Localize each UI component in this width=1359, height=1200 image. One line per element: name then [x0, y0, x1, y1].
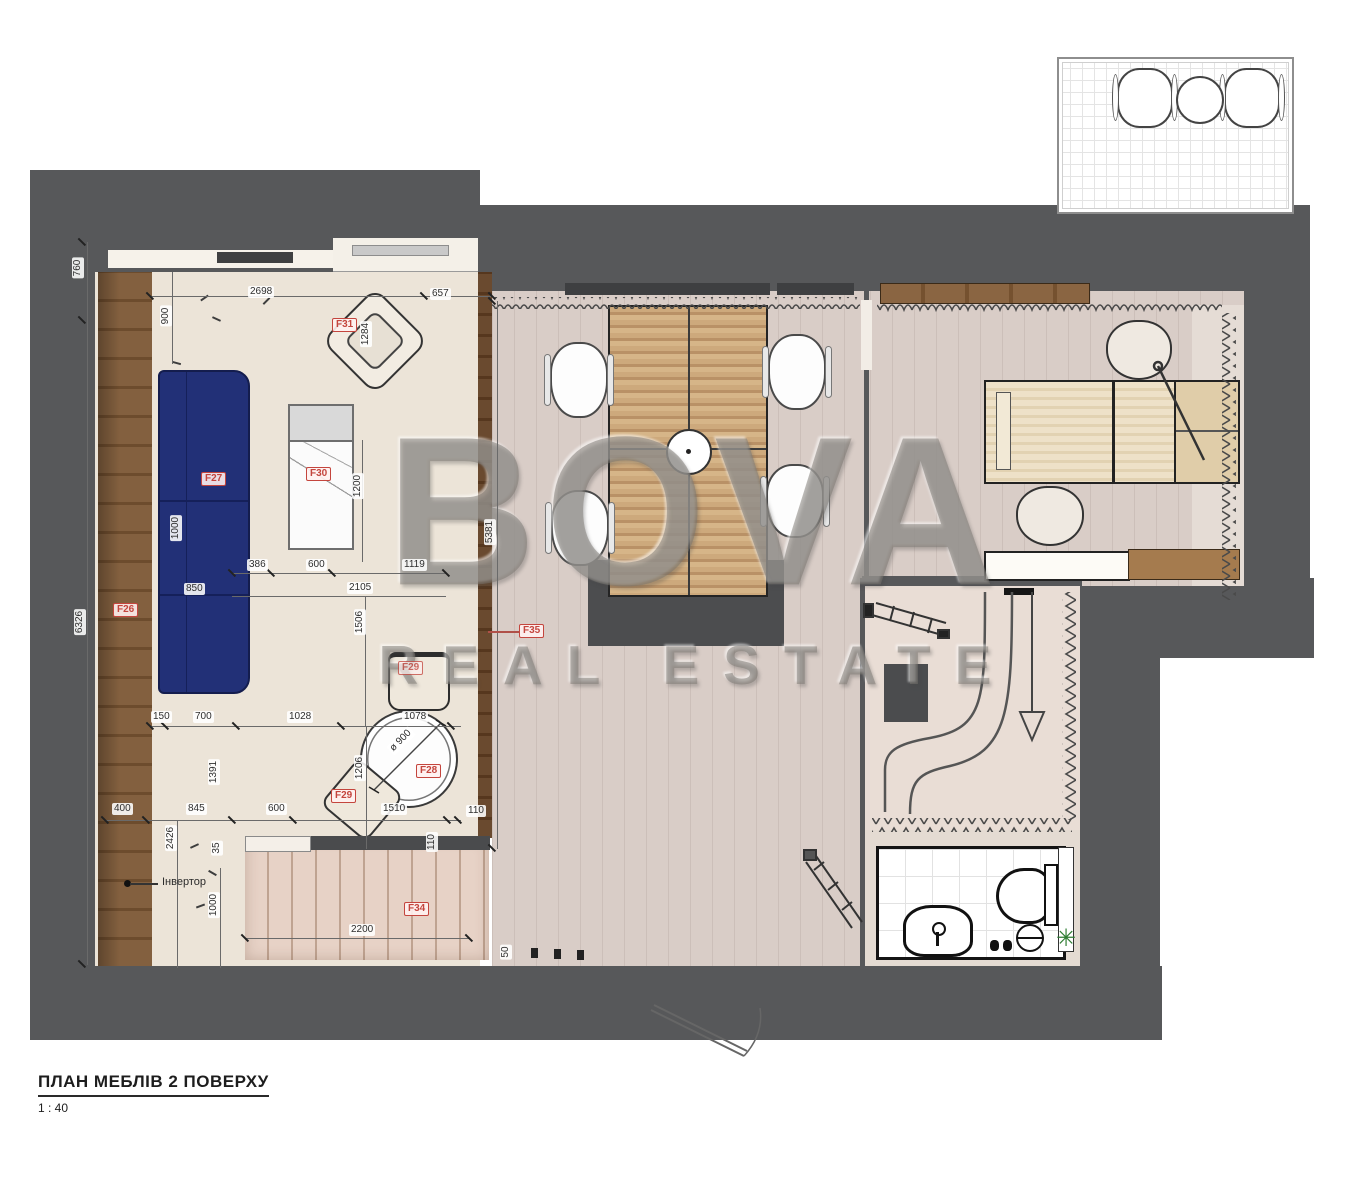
dim-1506: 1506 — [354, 609, 366, 635]
dim-line — [497, 301, 498, 849]
dim-657: 657 — [430, 288, 451, 300]
label-f28: F28 — [416, 764, 441, 778]
dim-400: 400 — [112, 803, 133, 815]
dim-1510: 1510 — [381, 803, 407, 815]
bath-ladder — [804, 850, 862, 928]
dim-850: 850 — [184, 583, 205, 595]
zig-void-bottom — [872, 818, 1072, 832]
dim-2698: 2698 — [248, 286, 274, 298]
dim-700: 700 — [193, 711, 214, 723]
label-f31: F31 — [332, 318, 357, 332]
zig-void-right — [1062, 592, 1076, 820]
dim-900: 900 — [160, 306, 172, 327]
dim-600b: 600 — [266, 803, 287, 815]
plan-scale: 1 : 40 — [38, 1101, 269, 1115]
dim-1000-sofa: 1000 — [170, 515, 182, 541]
dim-line — [177, 820, 178, 968]
dim-5381: 5381 — [484, 519, 496, 545]
label-f35: F35 — [519, 624, 544, 638]
label-f29: F29 — [331, 789, 356, 803]
zig-desk-right — [1222, 313, 1236, 600]
inverter-label: Інвертор — [160, 876, 208, 889]
dim-35: 35 — [211, 840, 223, 855]
dim-line — [87, 242, 88, 965]
dim-1078: 1078 — [402, 711, 428, 723]
dim-845: 845 — [186, 803, 207, 815]
dim-line — [172, 272, 173, 364]
label-f34: F34 — [404, 902, 429, 916]
dim-line — [245, 938, 469, 939]
page-title: ПЛАН МЕБЛІВ 2 ПОВЕРХУ — [38, 1072, 269, 1097]
void-ladder — [864, 603, 949, 638]
dim-1284: 1284 — [360, 321, 372, 347]
label-f30: F30 — [306, 467, 331, 481]
entry-door — [651, 1005, 761, 1056]
dim-1119: 1119 — [402, 559, 427, 571]
label-f26: F26 — [113, 603, 138, 617]
dim-386: 386 — [247, 559, 268, 571]
dim-line — [366, 726, 367, 849]
dim-50: 50 — [500, 944, 512, 959]
dim-110a: 110 — [466, 805, 486, 817]
dim-600a: 600 — [306, 559, 327, 571]
dim-110b: 110 — [426, 832, 438, 852]
floor-plan-canvas: Інвертор ✳ — [0, 0, 1359, 1200]
void-guard-inner — [885, 592, 985, 812]
dim-2105: 2105 — [347, 582, 373, 594]
linework-layer — [0, 0, 1359, 1200]
dim-6326: 6326 — [74, 609, 86, 635]
label-f27: F27 — [201, 472, 226, 486]
title-block: ПЛАН МЕБЛІВ 2 ПОВЕРХУ 1 : 40 — [38, 1072, 269, 1115]
label-f29b: F29 — [398, 661, 423, 675]
dim-line — [105, 820, 461, 821]
dim-760: 760 — [72, 258, 84, 279]
dim-1200: 1200 — [352, 473, 364, 499]
dim-line — [232, 573, 446, 574]
void-arrow-head — [1020, 712, 1044, 740]
dim-1206: 1206 — [354, 755, 366, 781]
dim-line — [232, 596, 446, 597]
dim-1391: 1391 — [208, 759, 220, 785]
dim-1000b: 1000 — [208, 892, 220, 918]
dim-line — [220, 868, 221, 968]
dim-line — [362, 440, 363, 562]
wave-desk-top — [877, 303, 1222, 315]
wave-dining-top — [492, 297, 860, 309]
desk-diagonal-rod — [1154, 362, 1204, 460]
dim-2200: 2200 — [349, 924, 375, 936]
dim-150: 150 — [151, 711, 172, 723]
dim-1028: 1028 — [287, 711, 313, 723]
dim-line — [150, 726, 461, 727]
dim-2426: 2426 — [165, 825, 177, 851]
void-guard-outer — [910, 592, 1012, 814]
label-f35-leader — [488, 631, 519, 633]
